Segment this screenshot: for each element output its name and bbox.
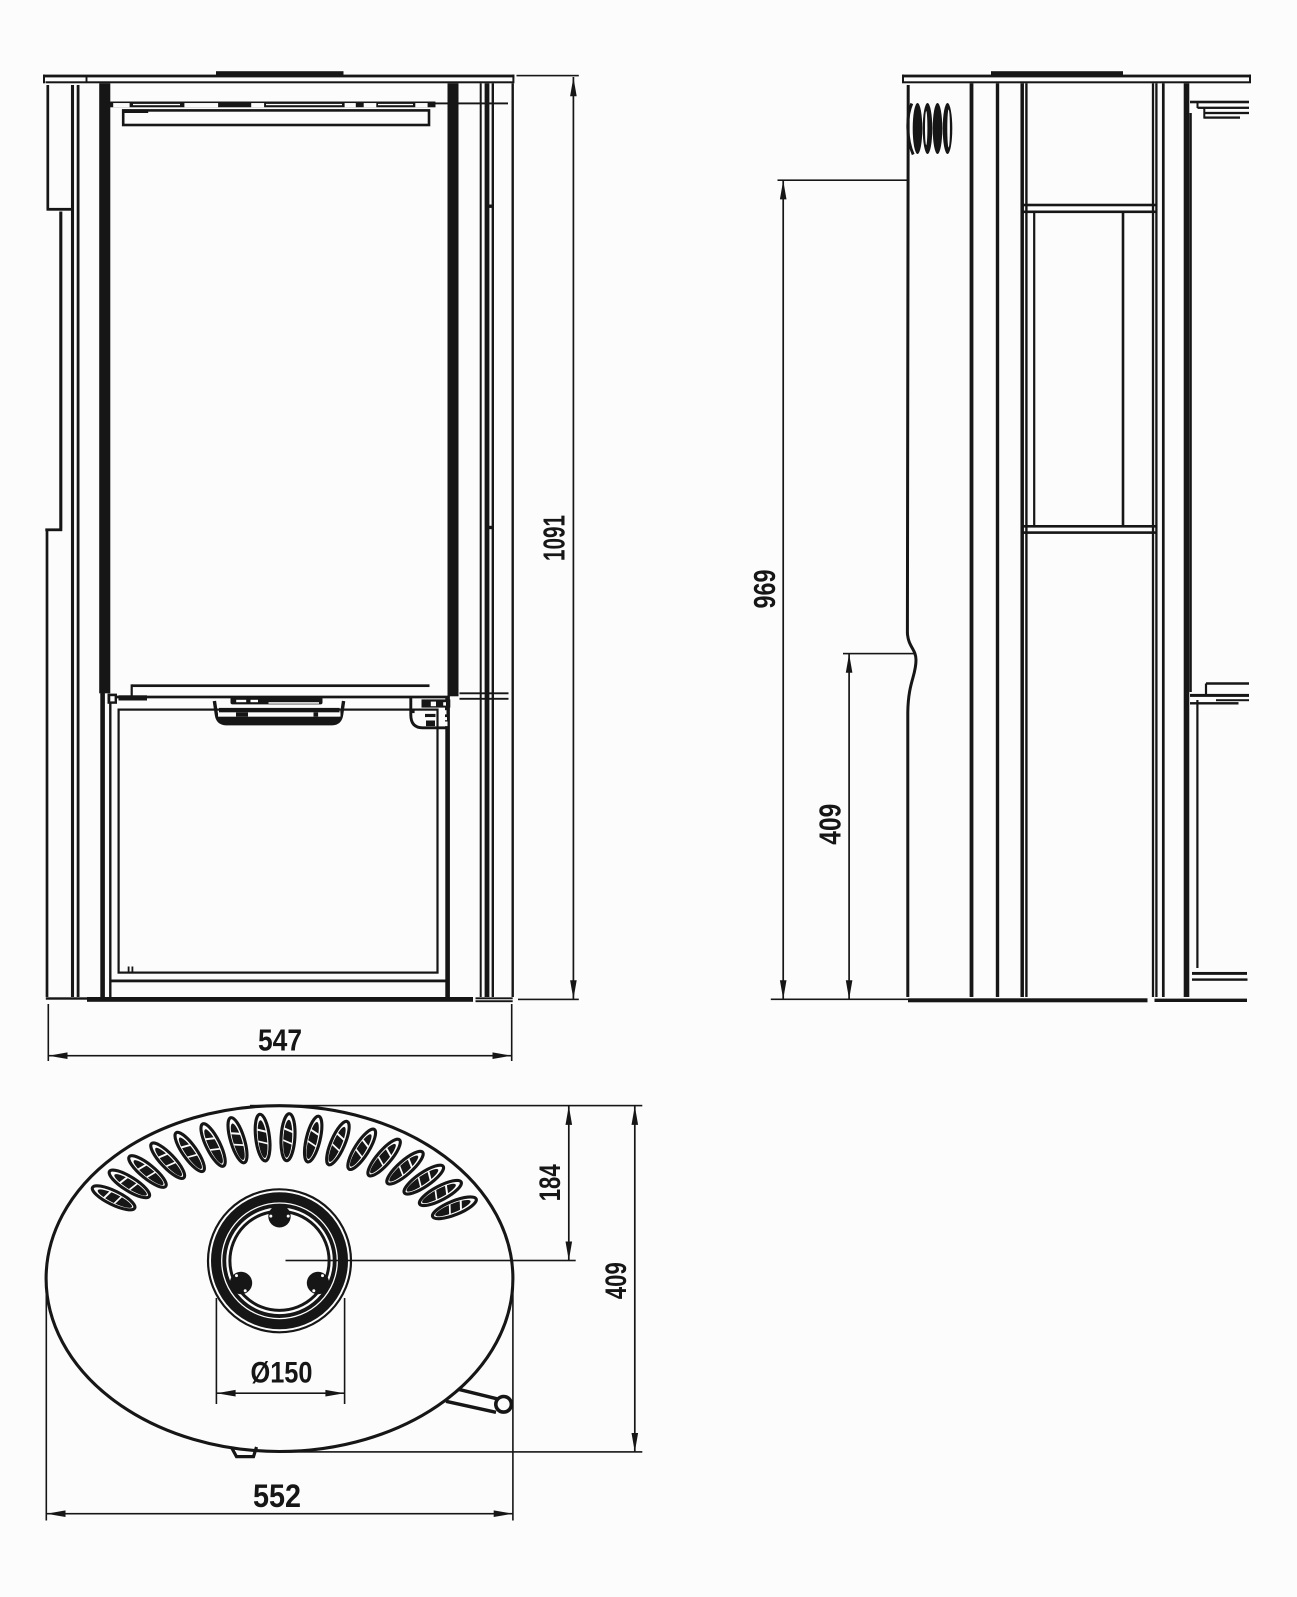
svg-text:409: 409 [812,804,847,845]
svg-text:969: 969 [747,570,782,609]
svg-text:552: 552 [253,1478,301,1514]
svg-text:1091: 1091 [537,515,572,561]
svg-text:Ø150: Ø150 [251,1357,313,1390]
svg-text:409: 409 [600,1262,633,1299]
svg-text:547: 547 [258,1023,302,1058]
svg-text:184: 184 [534,1164,567,1201]
